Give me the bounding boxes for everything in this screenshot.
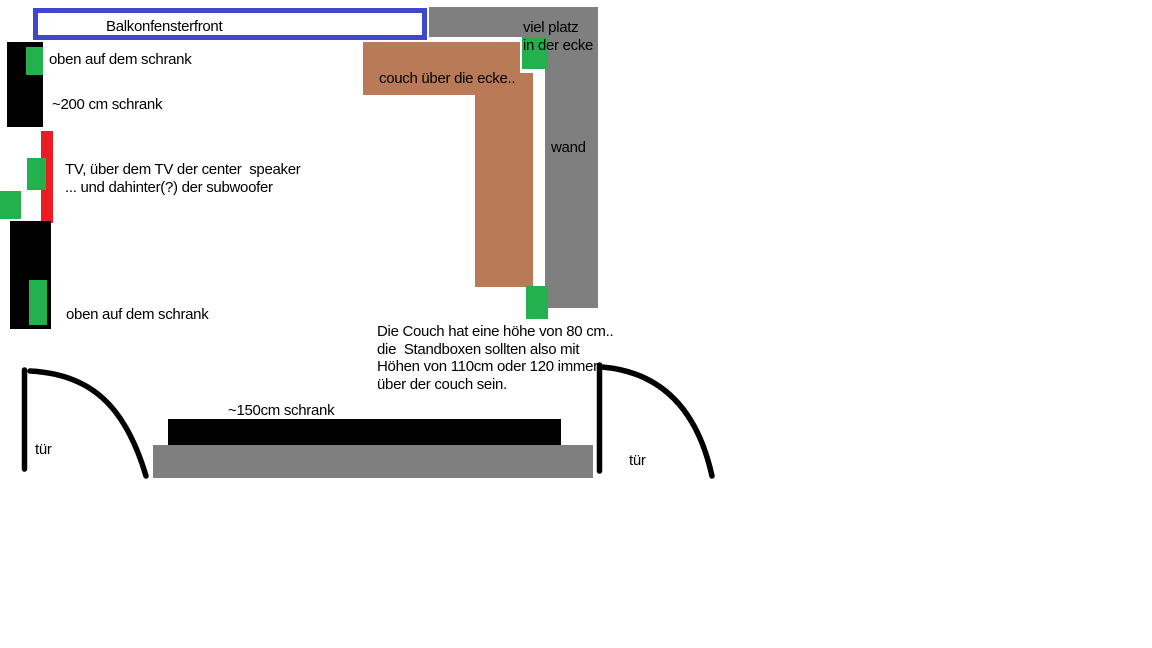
door-left-swing-arc <box>30 371 146 476</box>
door-right-swing-arc <box>602 367 712 476</box>
room-layout-sketch: Balkonfensterfront oben auf dem schrank … <box>0 0 1152 648</box>
door-right-label: tür <box>629 452 646 470</box>
door-arcs-drawing <box>0 0 1152 648</box>
door-left-label: tür <box>35 441 52 459</box>
